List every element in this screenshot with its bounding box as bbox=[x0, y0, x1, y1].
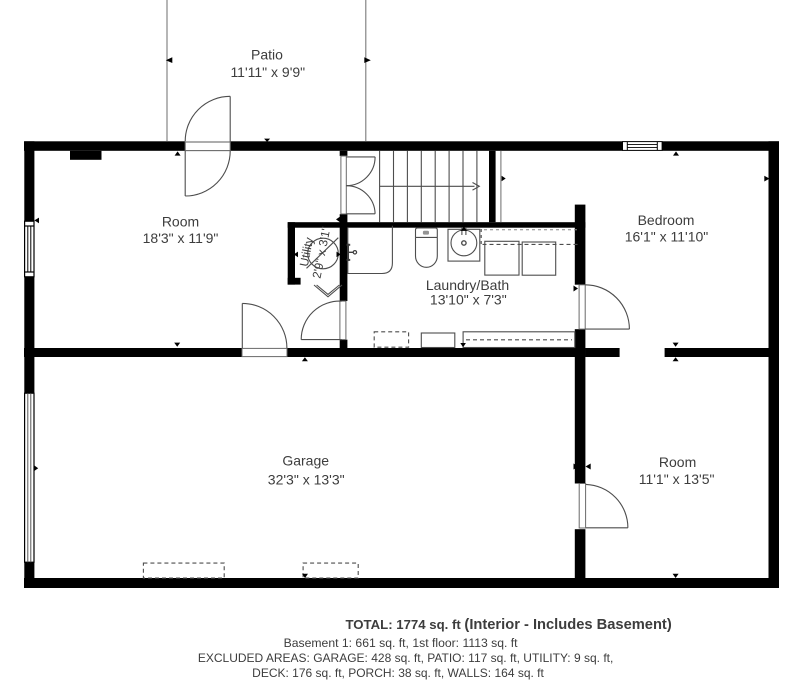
svg-text:13'10" x 7'3": 13'10" x 7'3" bbox=[430, 291, 507, 307]
svg-text:Room: Room bbox=[162, 214, 199, 230]
svg-text:11'11" x 9'9": 11'11" x 9'9" bbox=[230, 64, 305, 80]
svg-text:11'1" x 13'5": 11'1" x 13'5" bbox=[639, 471, 715, 487]
svg-text:16'1" x 11'10": 16'1" x 11'10" bbox=[625, 229, 709, 245]
svg-text:TOTAL: 1774 sq. ft (Interior -: TOTAL: 1774 sq. ft (Interior - Includes … bbox=[345, 617, 671, 633]
svg-text:EXCLUDED AREAS: GARAGE: 428 sq: EXCLUDED AREAS: GARAGE: 428 sq. ft, PATI… bbox=[198, 651, 613, 665]
svg-text:Garage: Garage bbox=[282, 453, 329, 469]
svg-text:Patio: Patio bbox=[251, 47, 283, 63]
svg-text:DECK: 176 sq. ft, PORCH: 38 sq: DECK: 176 sq. ft, PORCH: 38 sq. ft, WALL… bbox=[252, 666, 544, 680]
svg-text:18'3" x 11'9": 18'3" x 11'9" bbox=[143, 230, 219, 246]
svg-text:Room: Room bbox=[659, 454, 696, 470]
svg-text:Bedroom: Bedroom bbox=[638, 212, 695, 228]
svg-text:Basement 1: 661 sq. ft, 1st fl: Basement 1: 661 sq. ft, 1st floor: 1113 … bbox=[284, 636, 519, 650]
svg-text:32'3" x 13'3": 32'3" x 13'3" bbox=[268, 472, 345, 488]
